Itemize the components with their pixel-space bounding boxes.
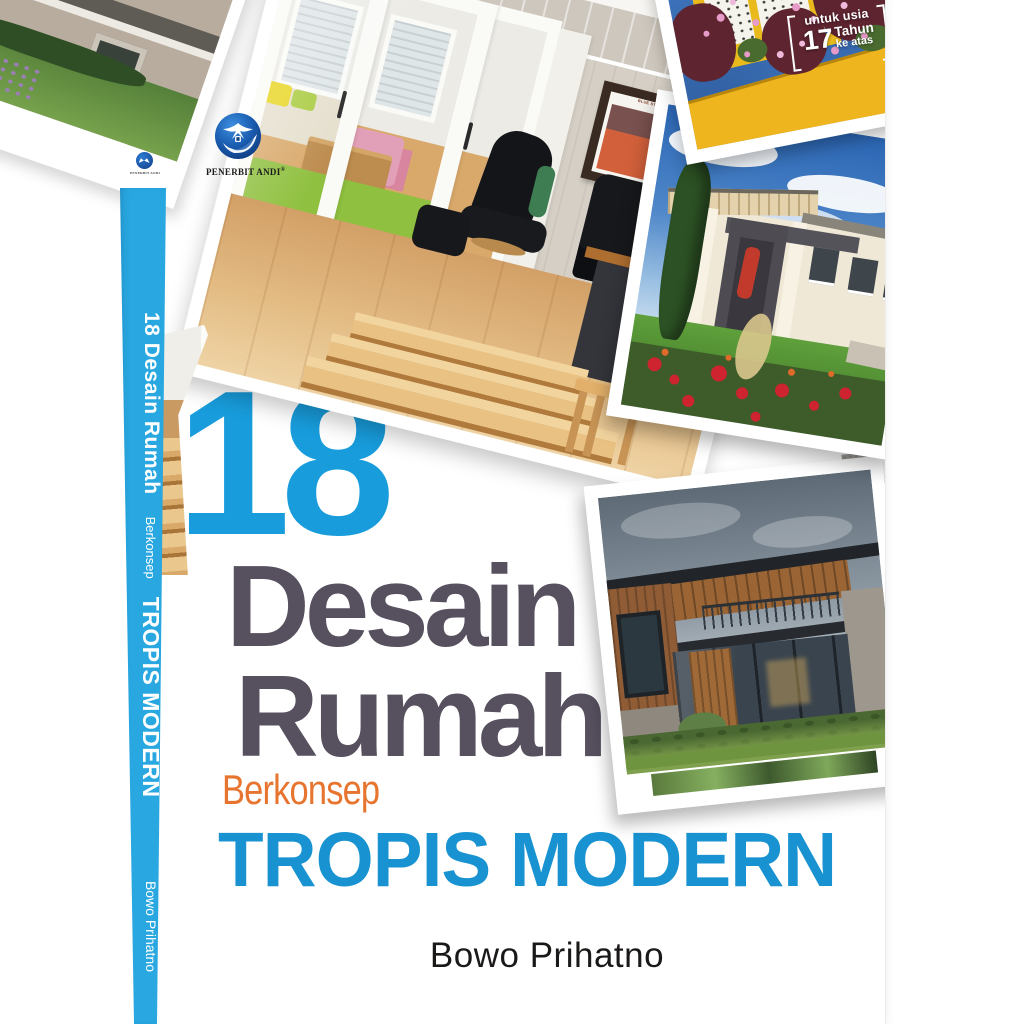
badge-line2: ke atas <box>835 35 876 51</box>
photo-wooden-house <box>584 455 886 815</box>
spine-subtitle-prefix: Berkonsep <box>144 517 159 579</box>
registered-mark: ® <box>281 167 286 173</box>
badge-age-number: 17 <box>802 27 835 53</box>
front-cover: BLUE STAR LINE <box>160 0 886 1024</box>
author-name: Bowo Prihatno <box>347 936 747 976</box>
spine-title: 18 Desain Rumah <box>139 312 163 495</box>
publisher-logo-icon <box>214 112 262 160</box>
window <box>847 257 878 297</box>
bird-icon <box>139 157 150 163</box>
book-cover-mockup: BLUE STAR LINE <box>0 0 1024 1024</box>
pink-flower <box>885 15 886 22</box>
publisher-name-small: PENERBIT ANDI <box>130 171 158 175</box>
window <box>808 247 839 287</box>
subtitle-main: TROPIS MODERN <box>218 822 836 899</box>
publisher-logo-small: PENERBIT ANDI <box>130 152 158 182</box>
badge-age-text: Tahun ke atas <box>834 21 876 51</box>
publisher-logo: PENERBIT ANDI® <box>206 112 270 177</box>
photo-tropical-house-image <box>621 104 886 446</box>
age-rating-badge: untuk usia 17 Tahun ke atas <box>793 5 885 71</box>
title-word-desain: Desain <box>226 548 576 664</box>
publisher-name: PENERBIT ANDI® <box>206 167 270 177</box>
subtitle-prefix: Berkonsep <box>222 766 379 814</box>
badge-row: 17 Tahun ke atas <box>795 20 883 56</box>
publisher-logo-small-icon <box>136 152 153 169</box>
title-word-rumah: Rumah <box>235 658 603 774</box>
spine-author: Bowo Prihatno <box>143 881 159 972</box>
interior-light-glow <box>766 657 811 707</box>
upper-window <box>616 610 669 698</box>
photo-wooden-house-image <box>598 470 886 801</box>
